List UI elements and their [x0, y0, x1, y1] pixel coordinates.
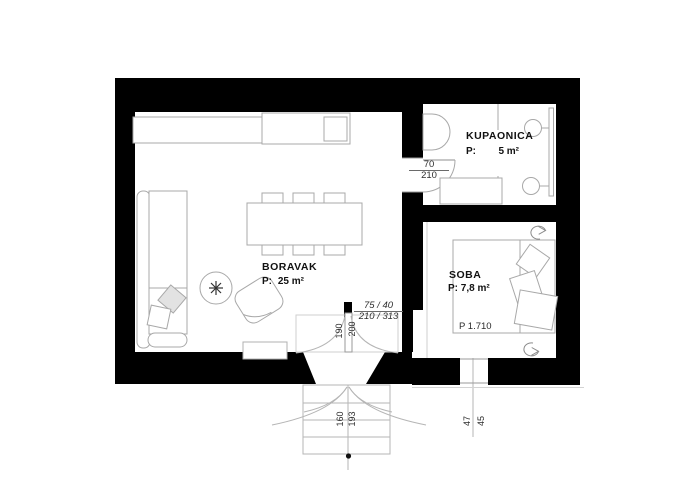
door-leaf-dim-left: 190 — [334, 323, 344, 338]
dining-table-set — [247, 193, 362, 255]
sofa-pillow — [147, 305, 171, 329]
rotation-arrow-icon — [524, 343, 539, 356]
wall-divider-upper — [402, 102, 423, 158]
wall-entry-right-jamb — [366, 352, 412, 384]
kitchen-counter — [133, 113, 350, 144]
room-area-kupaonica: P: 5 m² — [466, 146, 519, 157]
kitchen-counter-left — [133, 117, 262, 143]
entry-dimension: 75 / 40 210 / 313 — [354, 301, 403, 323]
bed-note-label: P 1.710 — [459, 322, 492, 332]
dim-width: 70 — [409, 160, 449, 170]
sofa-armrest — [148, 333, 187, 347]
chair — [293, 245, 314, 255]
window-dim-left: 47 — [462, 416, 472, 426]
porch-dim-right: 193 — [347, 411, 357, 426]
wall-bath-soba — [402, 205, 580, 222]
porch-dim-left: 160 — [335, 411, 345, 426]
sofa — [137, 191, 187, 348]
wall-top-right — [403, 78, 580, 104]
exterior-swing-right-inner — [349, 387, 392, 412]
floor-plan: KUPAONICA P: 5 m² BORAVAK P: 25 m² SOBA … — [0, 0, 700, 500]
bathtub — [440, 178, 502, 204]
chair — [293, 193, 314, 203]
sofa-seat-upper — [149, 191, 187, 288]
chair — [262, 193, 283, 203]
toilet — [423, 114, 450, 150]
survey-point-dot — [346, 453, 351, 458]
room-area-boravak: P: 25 m² — [262, 276, 304, 287]
plant — [200, 272, 232, 304]
dim-lower: 210 / 313 — [354, 311, 403, 322]
dim-height: 210 — [409, 170, 449, 181]
dining-table — [247, 203, 362, 245]
area-value: 5 m² — [498, 146, 519, 157]
radiator — [549, 108, 554, 196]
threshold-step — [243, 342, 287, 359]
porch-steps — [272, 385, 426, 470]
window-dim-right: 45 — [476, 416, 486, 426]
bedroom-furniture — [427, 222, 558, 358]
bed-duvet — [514, 290, 557, 330]
rotation-arrow-icon — [531, 226, 546, 239]
chair — [324, 245, 345, 255]
area-value: 25 m² — [278, 276, 304, 287]
exterior-swing-left-inner — [304, 387, 347, 412]
washbasin — [523, 178, 540, 195]
dim-upper: 75 / 40 — [354, 301, 403, 311]
area-prefix: P: — [466, 146, 476, 157]
plant-leaves-icon — [209, 281, 223, 295]
wall-divider-lower — [402, 310, 413, 352]
chair — [262, 245, 283, 255]
room-label-boravak: BORAVAK — [262, 262, 317, 274]
wall-soba-bottom-left — [412, 358, 460, 385]
area-prefix: P: — [262, 276, 272, 287]
wall-right — [556, 78, 580, 385]
chair — [324, 193, 345, 203]
wall-left — [115, 78, 135, 354]
exterior-swing-right-outer — [349, 387, 426, 425]
door-leaf-dim-right: 200 — [347, 321, 357, 336]
kitchen-sink — [324, 117, 347, 141]
room-label-soba: SOBA — [449, 270, 481, 282]
wall-top-left — [115, 78, 415, 112]
room-label-kupaonica: KUPAONICA — [466, 131, 533, 143]
room-area-soba: P: 7,8 m² — [448, 283, 490, 294]
bath-door-dimension: 70 210 — [409, 160, 449, 182]
